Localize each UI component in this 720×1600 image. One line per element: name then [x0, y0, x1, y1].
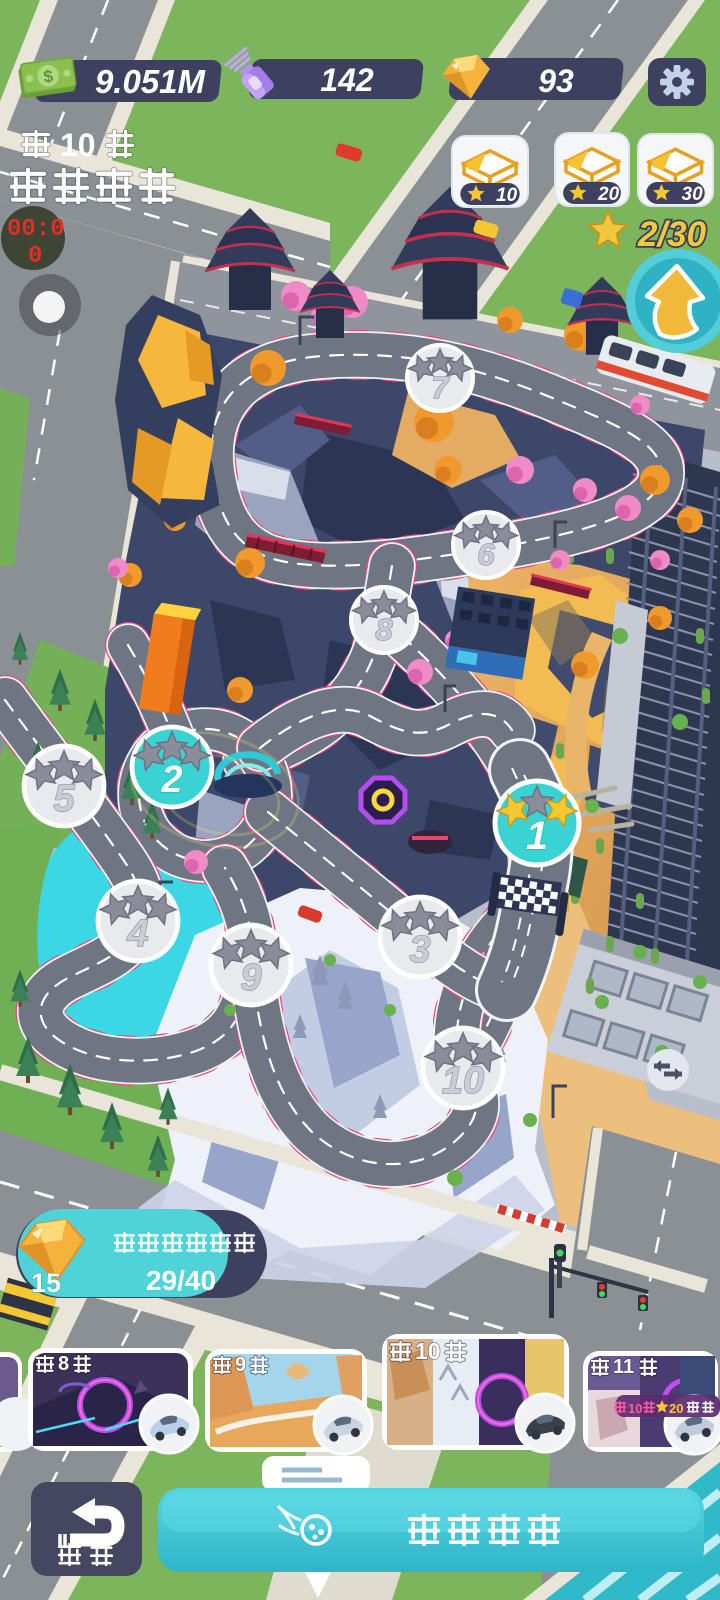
svg-text:30: 30	[682, 184, 704, 205]
svg-text:2/30: 2/30	[637, 215, 707, 254]
svg-text:8: 8	[58, 1353, 69, 1375]
svg-text:10: 10	[628, 1401, 642, 1416]
svg-text:3: 3	[409, 929, 430, 971]
svg-text:6: 6	[477, 537, 495, 572]
svg-text:10: 10	[496, 185, 518, 206]
svg-text:9: 9	[235, 1354, 246, 1376]
svg-text:5: 5	[53, 778, 75, 820]
svg-text:00:0: 00:0	[7, 216, 65, 243]
svg-text:0: 0	[28, 243, 42, 270]
svg-text:7: 7	[431, 370, 450, 405]
svg-text:10: 10	[60, 127, 96, 163]
svg-text:2: 2	[160, 759, 182, 801]
svg-text:11: 11	[613, 1356, 634, 1378]
svg-text:1: 1	[526, 814, 548, 858]
svg-text:10: 10	[442, 1060, 484, 1102]
svg-text:9: 9	[240, 957, 261, 999]
svg-text:93: 93	[538, 63, 574, 99]
svg-text:8: 8	[375, 612, 393, 647]
svg-text:10: 10	[415, 1338, 441, 1364]
svg-text:142: 142	[320, 62, 374, 98]
svg-text:20: 20	[669, 1401, 683, 1416]
svg-text:20: 20	[597, 184, 620, 205]
svg-text:15: 15	[31, 1268, 61, 1298]
svg-text:9.051M: 9.051M	[95, 63, 207, 100]
svg-text:4: 4	[126, 913, 148, 955]
svg-text:29/40: 29/40	[146, 1265, 216, 1296]
